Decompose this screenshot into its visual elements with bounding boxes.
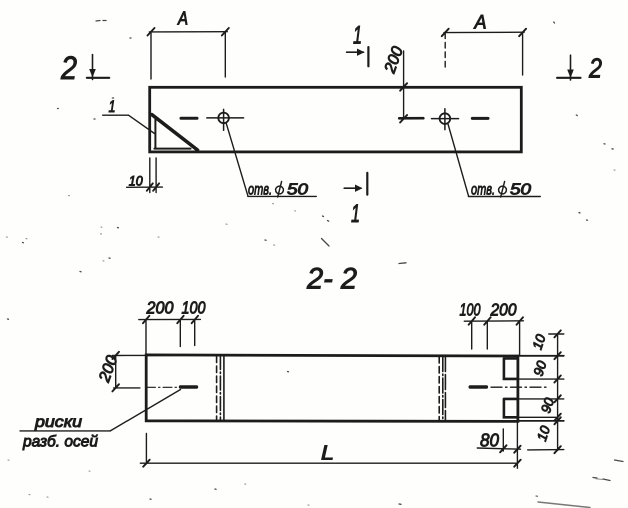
svg-text:A: A — [474, 13, 487, 34]
svg-text:разб. осей: разб. осей — [22, 434, 98, 451]
svg-text:отв.: отв. — [471, 182, 495, 199]
svg-text:200: 200 — [96, 353, 121, 385]
svg-text:50: 50 — [510, 182, 531, 199]
svg-text:200: 200 — [490, 300, 517, 320]
svg-text:L: L — [321, 443, 334, 465]
svg-text:1: 1 — [109, 97, 116, 116]
svg-text:100: 100 — [460, 300, 481, 320]
svg-text:10: 10 — [530, 332, 549, 351]
svg-text:100: 100 — [182, 298, 206, 318]
svg-text:2: 2 — [60, 50, 77, 86]
svg-text:200: 200 — [146, 298, 174, 318]
svg-text:50: 50 — [287, 182, 308, 199]
svg-text:2- 2: 2- 2 — [306, 263, 357, 296]
svg-text:1: 1 — [351, 200, 360, 228]
svg-text:риски: риски — [34, 414, 82, 431]
svg-text:90: 90 — [531, 359, 550, 378]
svg-text:10: 10 — [534, 424, 553, 443]
svg-text:10: 10 — [129, 174, 143, 189]
svg-text:2: 2 — [588, 53, 602, 84]
svg-text:отв.: отв. — [248, 182, 272, 199]
svg-text:1: 1 — [353, 22, 362, 50]
svg-text:80: 80 — [480, 430, 500, 451]
svg-text:A: A — [177, 9, 188, 29]
